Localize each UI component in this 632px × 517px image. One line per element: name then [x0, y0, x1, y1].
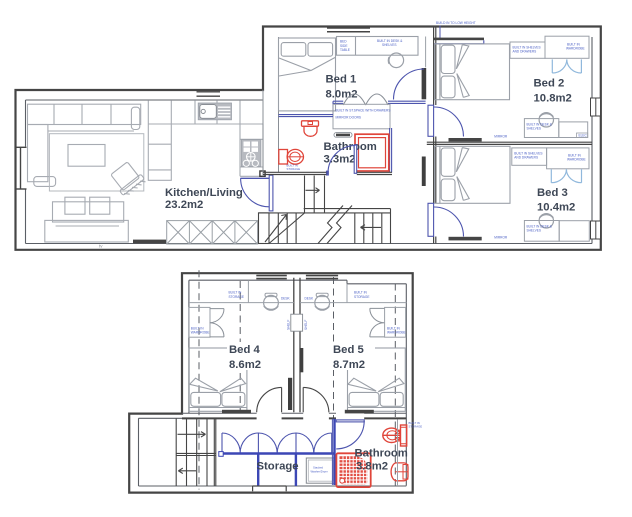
- svg-text:WARDROBE: WARDROBE: [567, 158, 586, 162]
- svg-text:3.3m2: 3.3m2: [324, 153, 356, 165]
- svg-text:WARDROBE: WARDROBE: [566, 47, 585, 51]
- svg-text:MIRROR: MIRROR: [494, 135, 508, 139]
- svg-text:DESK: DESK: [305, 297, 315, 301]
- svg-text:WARDROBE: WARDROBE: [387, 330, 406, 334]
- svg-text:Kitchen/Living: Kitchen/Living: [165, 187, 243, 199]
- svg-text:TABLE: TABLE: [340, 48, 350, 52]
- svg-text:MIRROR DOORS: MIRROR DOORS: [336, 116, 362, 120]
- svg-text:SHELVES: SHELVES: [527, 229, 541, 233]
- svg-text:10.8m2: 10.8m2: [534, 93, 572, 105]
- svg-text:Storage: Storage: [257, 461, 299, 473]
- svg-text:3.8m2: 3.8m2: [356, 461, 388, 473]
- svg-text:SHELF: SHELF: [286, 320, 290, 330]
- svg-text:Bed 3: Bed 3: [537, 187, 568, 199]
- svg-text:SHELVES: SHELVES: [527, 127, 541, 131]
- svg-text:Bathroom: Bathroom: [355, 448, 408, 460]
- svg-text:AND DRAWERS: AND DRAWERS: [513, 50, 537, 54]
- svg-text:ELEC: ELEC: [579, 134, 588, 138]
- svg-text:Bed 1: Bed 1: [326, 74, 357, 86]
- svg-text:Bed 4: Bed 4: [229, 344, 260, 356]
- svg-text:STORAGE: STORAGE: [229, 295, 245, 299]
- svg-text:10.4m2: 10.4m2: [537, 202, 575, 214]
- svg-text:AND DRAWERS: AND DRAWERS: [514, 156, 538, 160]
- svg-text:Bed 5: Bed 5: [333, 344, 364, 356]
- svg-text:DESK: DESK: [281, 297, 291, 301]
- svg-text:8.6m2: 8.6m2: [229, 359, 261, 371]
- svg-text:BUILD IN TO LOW HEIGHT: BUILD IN TO LOW HEIGHT: [436, 21, 476, 25]
- svg-text:Bathroom: Bathroom: [324, 141, 377, 153]
- svg-text:SHELVES: SHELVES: [382, 43, 396, 47]
- svg-text:STORAGE: STORAGE: [287, 167, 301, 171]
- svg-text:23.2m2: 23.2m2: [165, 199, 203, 211]
- svg-text:Bed 2: Bed 2: [534, 78, 565, 90]
- svg-text:STORAGE: STORAGE: [354, 295, 370, 299]
- svg-text:SHELF: SHELF: [304, 320, 308, 330]
- svg-text:Washer/Dryer: Washer/Dryer: [311, 470, 328, 474]
- svg-text:8.7m2: 8.7m2: [333, 359, 365, 371]
- svg-text:BUILT IN ST.SPACE WITH DRAWERS: BUILT IN ST.SPACE WITH DRAWERS: [336, 109, 391, 113]
- svg-text:STORAGE: STORAGE: [409, 425, 423, 429]
- svg-text:WARDROBE: WARDROBE: [191, 330, 210, 334]
- svg-text:MIRROR: MIRROR: [494, 236, 508, 240]
